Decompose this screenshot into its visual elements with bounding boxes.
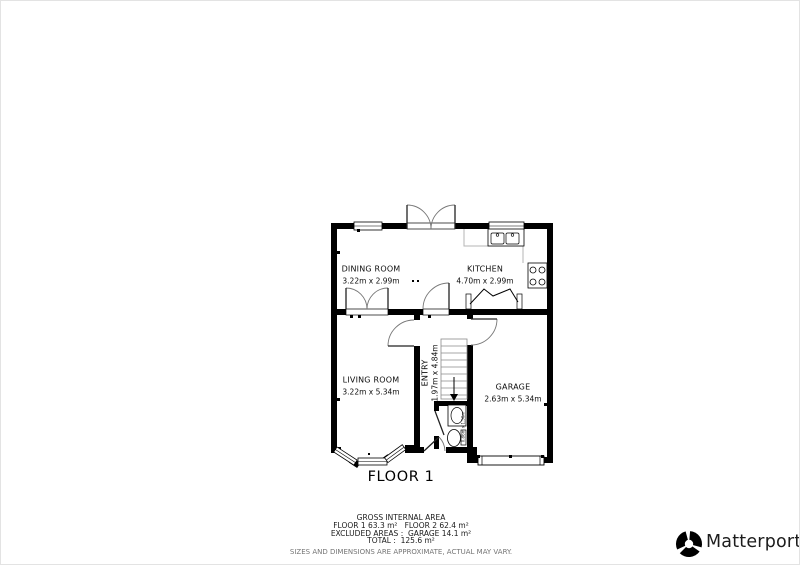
bay-window-center [358,458,387,465]
front-door-arc [439,437,445,451]
bifold-door [466,289,522,309]
door-leaves [346,205,497,451]
room-label-dining: DINING ROOM [342,265,401,274]
kitchen-sink [488,229,524,246]
bay-window-right [384,445,405,463]
room-divider-dot [417,280,419,282]
room-label-entry: ENTRY [421,360,430,387]
floor-title: FLOOR 1 [368,469,435,485]
room-dims-entry: 1.97m x 4.84m [431,344,440,401]
garage-door [477,455,544,465]
room-dims-wc: 0.86m x 1.50m [461,412,466,443]
hall-dining-door-arc [423,283,449,309]
stairs-down-arrow [450,394,458,401]
logo-icon-spacer [673,528,703,556]
room-dims-garage: 2.63m x 5.34m [484,395,541,404]
matterport-logo: Matterport® [673,528,800,556]
staircase [441,339,467,401]
room-dims-dining: 3.22m x 2.99m [342,277,399,286]
room-dims-living: 3.22m x 5.34m [342,388,399,397]
dining-door-arc-left [346,288,367,309]
matterport-wordmark: Matterport® [706,532,800,552]
living-door-arc [388,320,414,346]
floorplan-page: DINING ROOM 3.22m x 2.99m KITCHEN 4.70m … [0,0,800,565]
room-divider-dot [412,280,414,282]
dining-door-arc-right [367,288,388,309]
window-dining-top [354,222,382,230]
room-label-kitchen: KITCHEN [467,265,503,274]
door-arcs [346,205,497,451]
wall-markers [337,229,547,455]
garage-entry-door-arc [471,319,497,345]
stove [528,263,547,288]
windows [334,222,524,465]
room-dims-kitchen: 4.70m x 2.99m [456,277,513,286]
room-label-living: LIVING ROOM [343,376,400,385]
room-label-garage: GARAGE [496,383,531,392]
wc-door-leaf [435,411,444,435]
bay-window-left [334,447,357,465]
